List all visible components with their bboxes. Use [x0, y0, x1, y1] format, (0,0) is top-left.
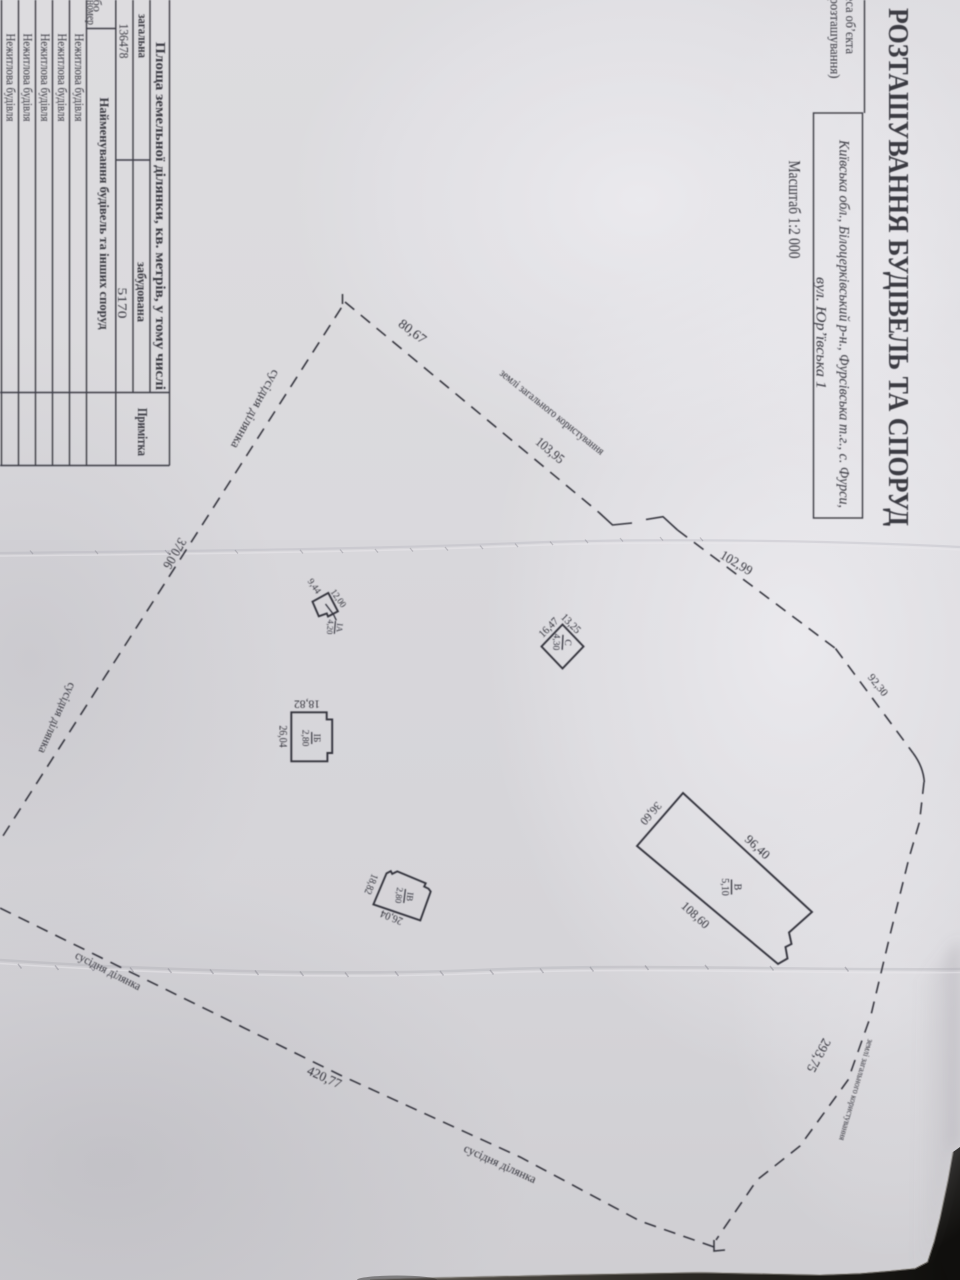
svg-text:5,10: 5,10 — [719, 878, 730, 896]
svg-text:Площа земельної ділянки, кв. м: Площа земельної ділянки, кв. метрів, у т… — [153, 42, 168, 390]
svg-text:4,20: 4,20 — [325, 619, 336, 635]
svg-text:18,82: 18,82 — [294, 698, 320, 710]
svg-text:2,80: 2,80 — [393, 887, 405, 904]
svg-text:РОЗТАШУВАННЯ БУДІВЕЛЬ ТА СПОРУ: РОЗТАШУВАННЯ БУДІВЕЛЬ ТА СПОРУД — [882, 8, 914, 526]
svg-text:ІБ: ІБ — [311, 734, 321, 743]
svg-text:Примітка: Примітка — [135, 408, 150, 456]
svg-text:вул. Юрʼївська 1: вул. Юрʼївська 1 — [813, 277, 829, 389]
svg-text:ІВ: ІВ — [405, 892, 416, 902]
svg-text:2,80: 2,80 — [300, 730, 310, 747]
svg-text:Нежитлова будівля: Нежитлова будівля — [4, 34, 19, 122]
svg-text:забудована: забудована — [134, 262, 148, 323]
svg-text:Нежитлова будівля: Нежитлова будівля — [21, 34, 36, 122]
svg-text:С: С — [562, 639, 572, 646]
svg-text:Нежитлова будівля: Нежитлова будівля — [72, 34, 87, 122]
svg-text:Нежитлова будівля: Нежитлова будівля — [38, 33, 53, 121]
svg-text:Київська обл., Білоцерківськи: Київська обл., Білоцерківський р-н., Фур… — [836, 139, 852, 508]
svg-text:В: В — [732, 884, 743, 891]
svg-text:5170: 5170 — [115, 288, 129, 319]
svg-text:Найменування будівель та інших: Найменування будівель та інших споруд — [97, 98, 112, 330]
svg-text:26,04: 26,04 — [277, 726, 289, 748]
svg-text:загальна: загальна — [135, 14, 149, 59]
svg-text:адреса обʼєкта: адреса обʼєкта — [842, 0, 857, 55]
svg-text:розташування): розташування) — [827, 0, 842, 79]
svg-text:Масштаб 1:2 000: Масштаб 1:2 000 — [785, 161, 804, 259]
svg-text:4,30: 4,30 — [550, 633, 561, 650]
svg-text:136478: 136478 — [116, 24, 130, 59]
svg-text:Нежитлова будівля: Нежитлова будівля — [55, 34, 70, 122]
svg-text:номер: номер — [85, 0, 97, 25]
